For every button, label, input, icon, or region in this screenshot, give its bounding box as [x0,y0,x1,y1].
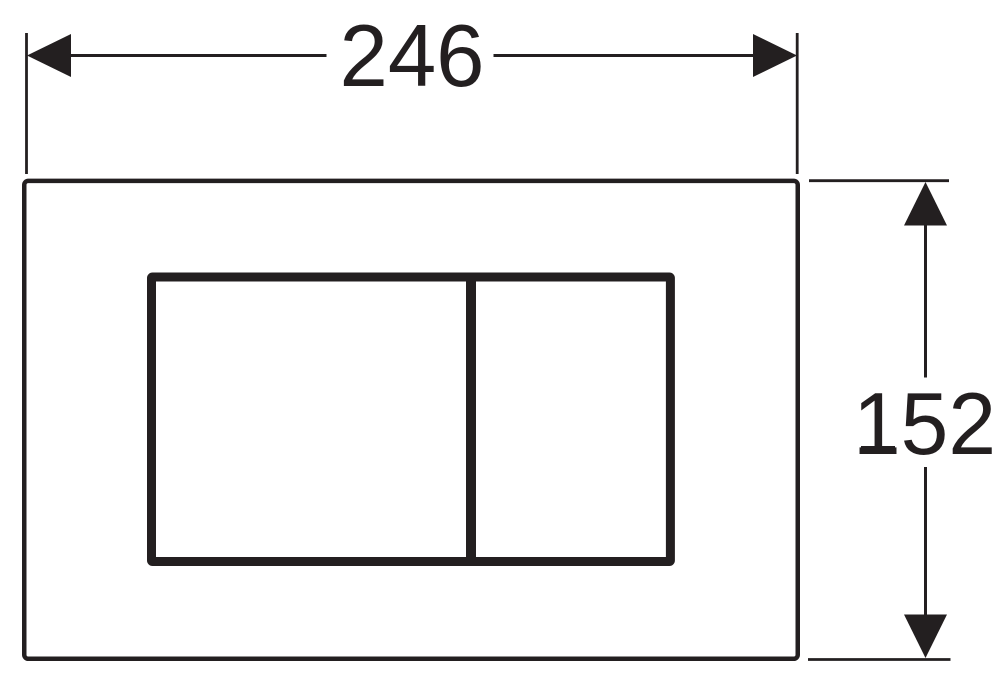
svg-text:152: 152 [853,374,996,473]
svg-text:246: 246 [340,6,485,105]
